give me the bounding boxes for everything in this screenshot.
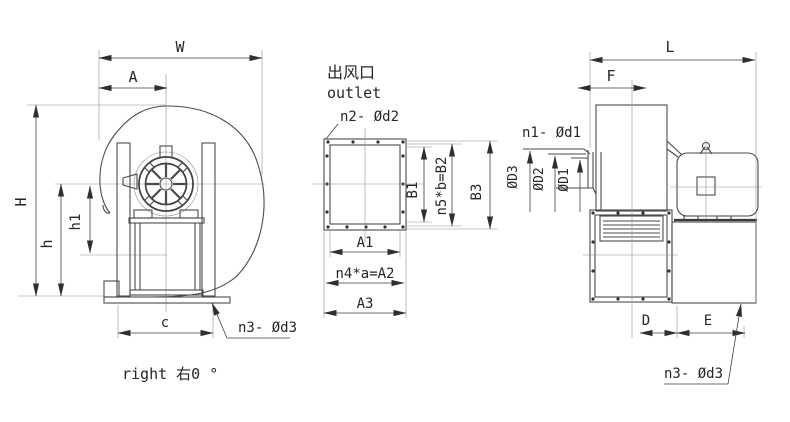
n2-leader bbox=[326, 124, 338, 139]
motor bbox=[670, 140, 762, 222]
caption-right-0deg: right 右0 ° bbox=[122, 365, 218, 383]
dim-label-w: W bbox=[175, 38, 185, 56]
scroll-housing bbox=[100, 106, 264, 297]
bolt-note-n3-left: n3- Ød3 bbox=[238, 320, 297, 336]
side-base bbox=[672, 220, 757, 303]
dim-label-c: c bbox=[161, 315, 169, 331]
bolt-note-n2: n2- Ød2 bbox=[340, 109, 399, 125]
left-base bbox=[104, 281, 230, 303]
dim-label-l: L bbox=[665, 38, 674, 56]
left-dimensions: W A H h h1 c n3- Ød3 right 右0 ° bbox=[12, 38, 297, 383]
side-view: n1- Ød1 ØD3 ØD2 ØD1 bbox=[506, 38, 762, 384]
outlet-duct bbox=[596, 105, 682, 211]
dim-label-h: h bbox=[38, 239, 56, 248]
dim-label-b3: B3 bbox=[469, 184, 485, 201]
outlet-title-en: outlet bbox=[327, 84, 381, 102]
inlet-diameter-dims: n1- Ød1 ØD3 ØD2 ØD1 bbox=[506, 125, 581, 212]
dim-label-d: D bbox=[642, 313, 650, 329]
bolt-note-n3-right: n3- Ød3 bbox=[664, 366, 723, 382]
dim-label-a3: A3 bbox=[357, 296, 374, 312]
left-view: W A H h h1 c n3- Ød3 right 右0 ° bbox=[12, 38, 297, 383]
fan-dimension-drawing: W A H h h1 c n3- Ød3 right 右0 ° 出风口 outl… bbox=[0, 0, 790, 422]
housing-flange bbox=[583, 80, 678, 338]
dim-label-f: F bbox=[606, 67, 615, 85]
dim-label-d1-dia: ØD1 bbox=[557, 168, 572, 191]
dim-label-a: A bbox=[128, 68, 137, 86]
outlet-title-cn: 出风口 bbox=[327, 63, 375, 82]
outlet-view: 出风口 outlet n2- Ød2 A1 n4*a=A2 bbox=[312, 63, 498, 318]
dim-label-h1: h1 bbox=[68, 214, 84, 231]
dim-label-d3-dia: ØD3 bbox=[506, 165, 521, 188]
louver-stripes bbox=[603, 221, 660, 237]
drawing-sheet: W A H h h1 c n3- Ød3 right 右0 ° 出风口 outl… bbox=[0, 0, 790, 422]
inlet-ring bbox=[123, 146, 198, 218]
dim-label-h-total: H bbox=[12, 197, 30, 206]
dim-label-a2: n4*a=A2 bbox=[335, 266, 394, 282]
dim-label-b1: B1 bbox=[405, 182, 421, 199]
dim-label-d2-dia: ØD2 bbox=[532, 167, 547, 190]
bolt-note-n1: n1- Ød1 bbox=[522, 125, 581, 141]
left-centerlines bbox=[18, 74, 265, 312]
dim-label-a1: A1 bbox=[357, 235, 374, 251]
dim-label-b2: n5*b=B2 bbox=[434, 156, 450, 215]
dim-label-e: E bbox=[704, 313, 712, 329]
